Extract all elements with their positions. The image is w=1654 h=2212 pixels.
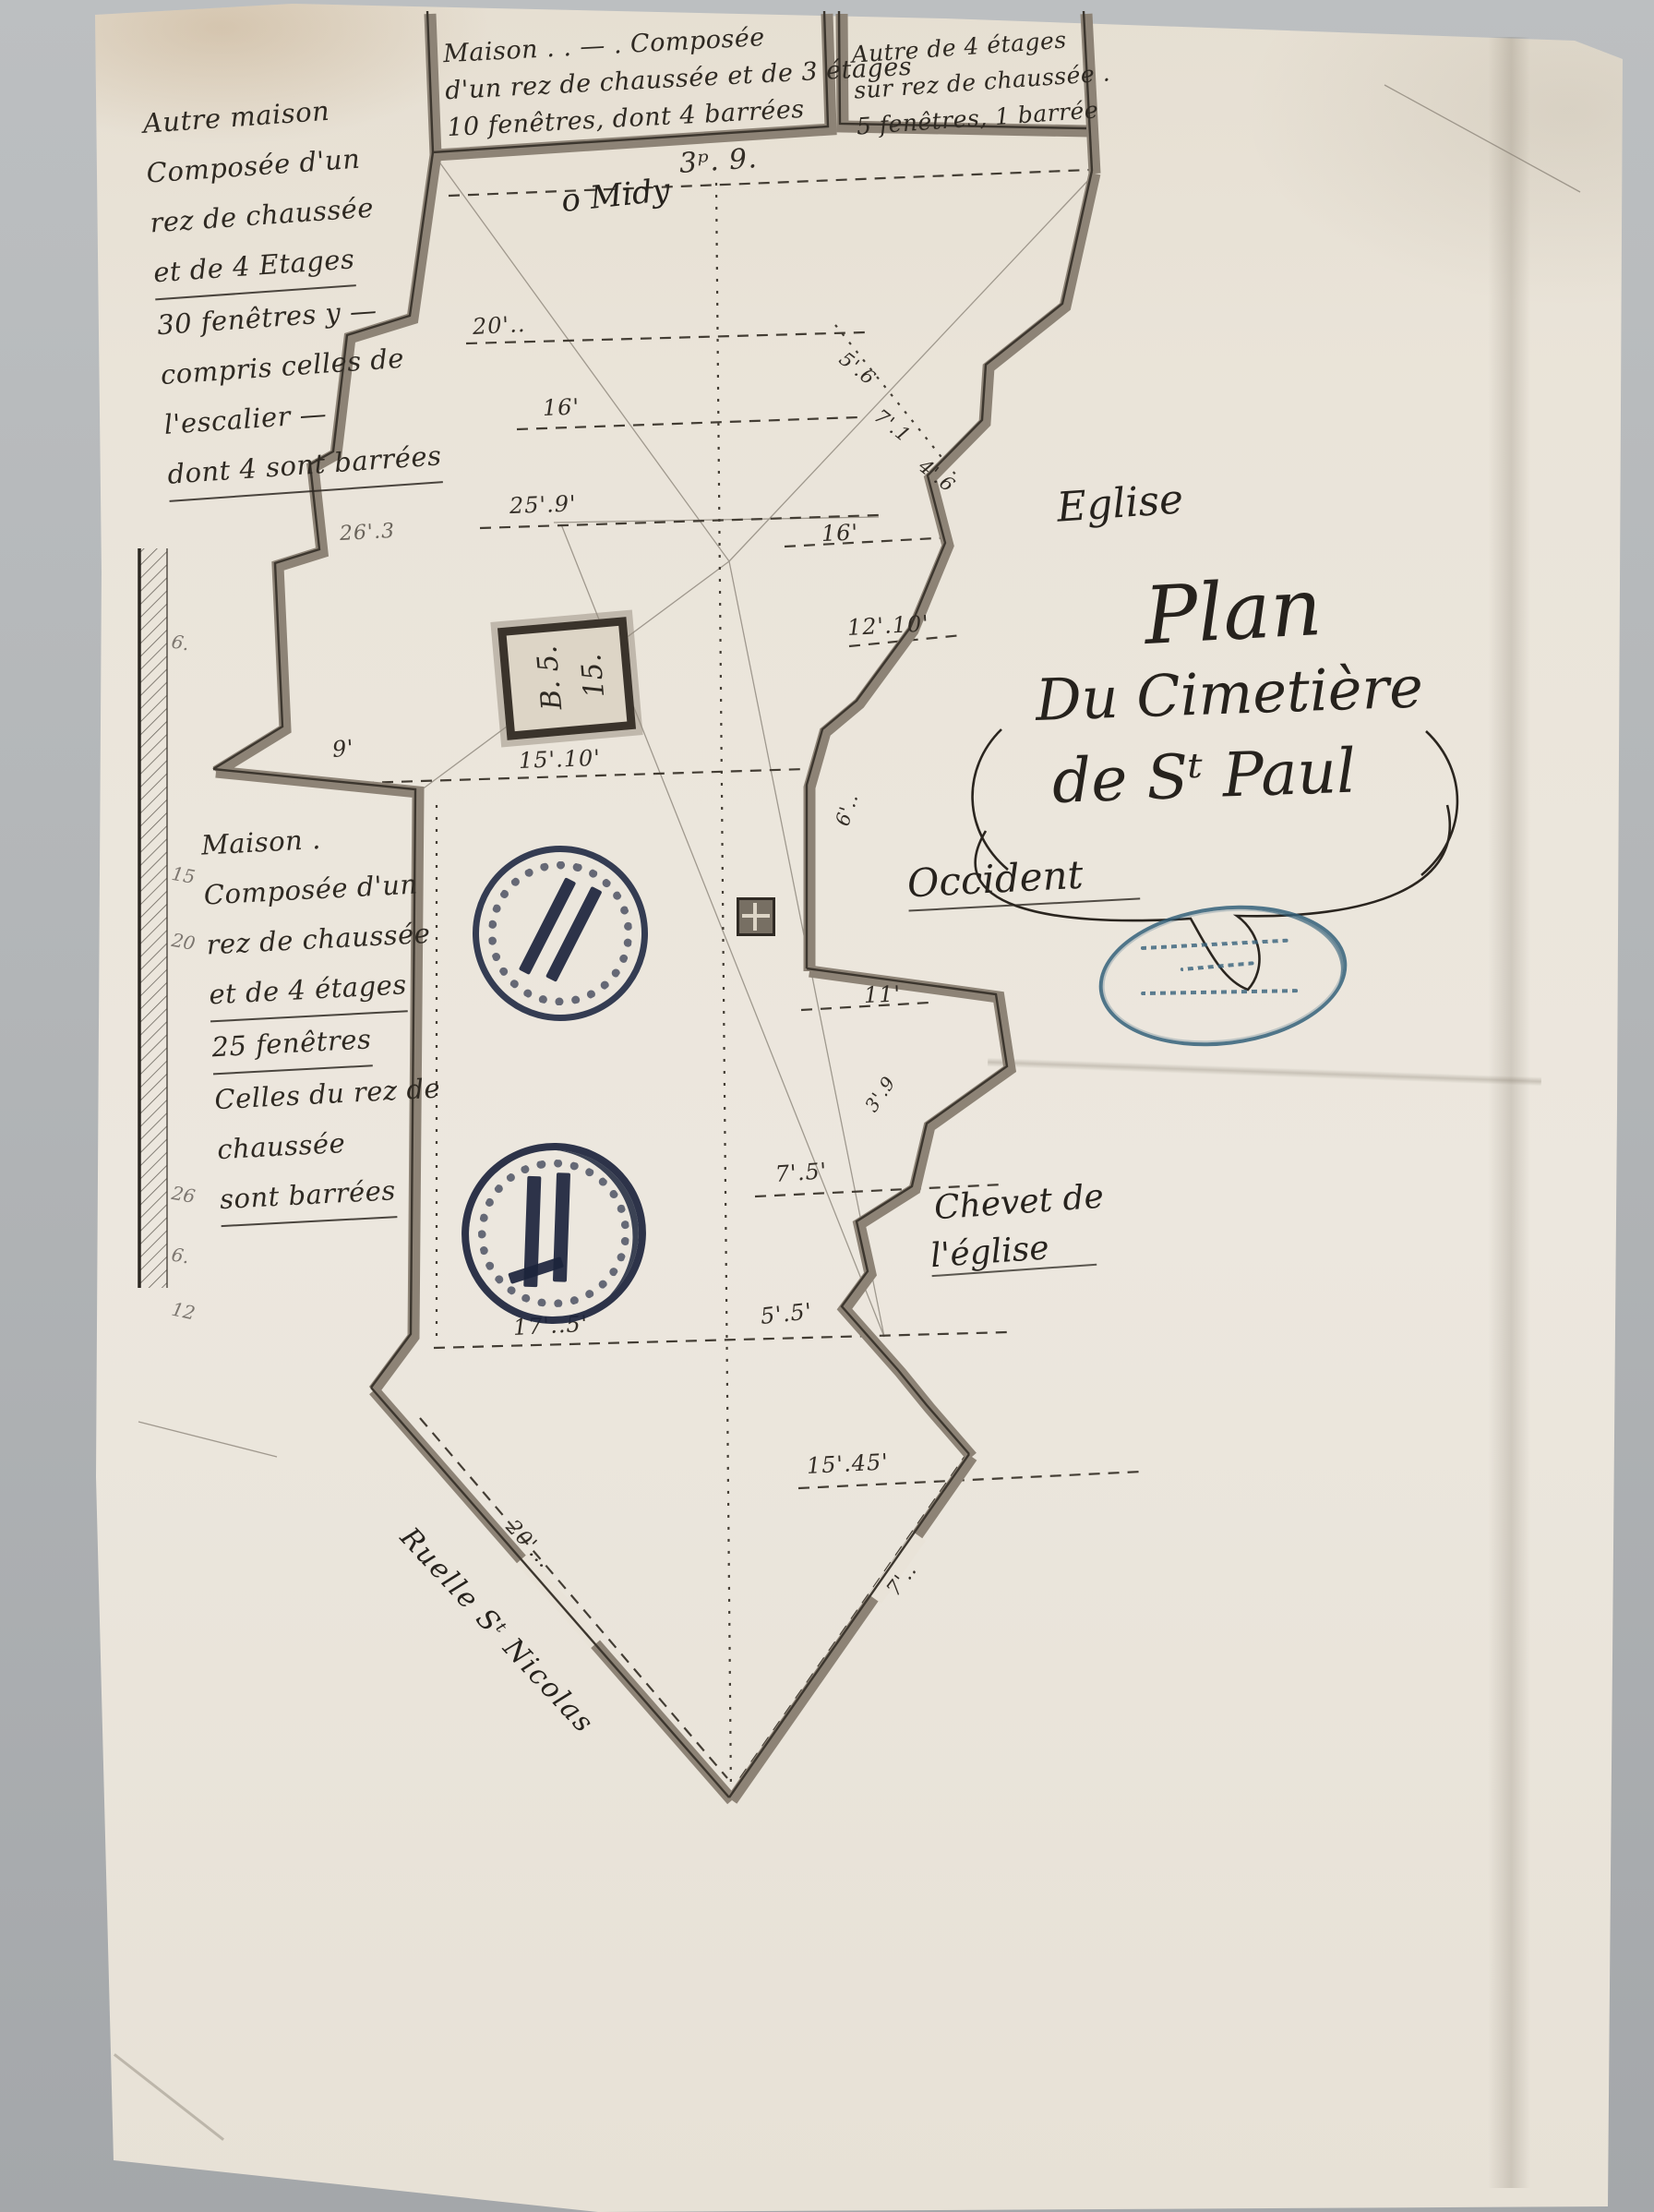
note-line: 25 fenêtres (210, 1014, 373, 1075)
stamp-text-mark (1181, 961, 1254, 971)
scanned-plan-photo: Autre maison Composée d'un rez de chauss… (0, 0, 1654, 2212)
strip-number: 12 (170, 1298, 198, 1325)
street-hatch-strip (139, 548, 167, 1288)
dimension-label: 20'.. (472, 311, 526, 340)
note-mid-left: Maison . Composée d'un rez de chaussée e… (200, 809, 448, 1227)
survey-dashed-lines (363, 170, 1142, 1796)
note-top-right: Autre de 4 étages sur rez de chaussée . … (850, 18, 1114, 144)
title-du-cimetiere: Du Cimetière (1035, 653, 1424, 734)
label-eglise: Eglise (1055, 475, 1184, 531)
dimension-label: 15'.45' (806, 1449, 889, 1479)
dimension-label: 15'.10' (519, 745, 602, 774)
dimension-label: 7'.5' (774, 1158, 828, 1187)
dimension-label: 3ᵖ. 9. (678, 142, 759, 180)
strip-number: 26 (170, 1182, 197, 1208)
stamp-text-mark (1141, 939, 1288, 950)
plot-marker-text: 15. (575, 653, 611, 700)
strip-number: 20 (170, 929, 197, 955)
stamp-rim-text (472, 845, 648, 1021)
note-line: sont barrées (219, 1165, 397, 1227)
cross-marker-bar (742, 914, 770, 918)
note-line: et de 4 étages (208, 959, 408, 1022)
dimension-label: 16' (821, 520, 859, 547)
dimension-label: 16' (543, 394, 581, 421)
dimension-label: 5'.5' (760, 1298, 814, 1329)
title-plan: Plan (1142, 561, 1324, 663)
strip-number: 15 (170, 862, 197, 888)
plot-marker-text: B. 5. (531, 644, 569, 712)
strip-number: 6. (170, 1244, 191, 1268)
strip-number: 6. (170, 631, 191, 655)
dimension-label: 25'.9' (509, 490, 578, 519)
dimension-label: 9' (331, 735, 355, 763)
plot-marker-square: B. 5. 15. (497, 617, 636, 740)
cross-marker (737, 897, 775, 936)
dimension-label: 12'.10' (846, 610, 929, 641)
note-top-left: Autre maison Composée d'un rez de chauss… (141, 79, 443, 502)
dimension-label: 11' (864, 981, 902, 1008)
note-line: chaussée (216, 1112, 444, 1174)
stamp-text-mark (1141, 989, 1298, 995)
title-de-st-paul: de Sᵗ Paul (1051, 736, 1358, 817)
dimension-label: 26'.3 (339, 520, 395, 546)
